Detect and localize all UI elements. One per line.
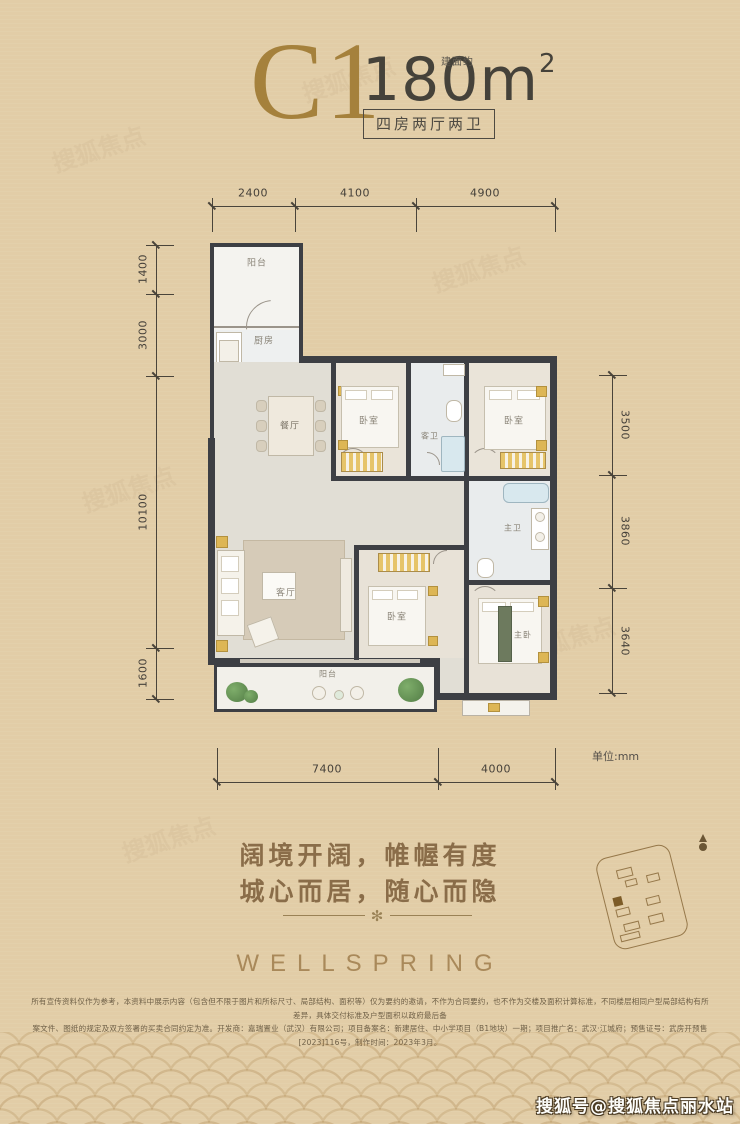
nightstand [536, 386, 547, 397]
cushion [221, 556, 239, 572]
dim-label: 7400 [312, 763, 342, 776]
entry-mat [488, 703, 500, 712]
nightstand [538, 596, 549, 607]
north-arrow-base [699, 843, 707, 851]
room-label-bedroom-3: 卧室 [504, 414, 524, 427]
dim-label: 3000 [137, 320, 150, 350]
wall-bottom-right [437, 693, 557, 700]
divider-right [390, 915, 472, 916]
vanity [443, 364, 465, 376]
disclaimer-line1: 所有宣传资料仅作为参考，本资料中展示内容（包含但不限于图片和所标尺寸、局部结构、… [28, 995, 712, 1022]
toilet [477, 558, 494, 578]
wall-inner [354, 545, 469, 550]
dim-line-bottom [217, 782, 555, 783]
dim-label: 3640 [619, 626, 632, 656]
pillow [397, 590, 418, 600]
pillow [510, 602, 534, 612]
nightstand [338, 440, 348, 450]
dining-chair [256, 440, 267, 452]
balcony-chair [350, 686, 364, 700]
wall-top [299, 356, 557, 363]
sink [535, 512, 545, 522]
dim-label: 3500 [619, 410, 632, 440]
dim-tick [555, 198, 556, 232]
tv-console [340, 558, 352, 632]
plant [244, 690, 258, 703]
wardrobe [500, 452, 546, 469]
room-label-balcony-top: 阳台 [247, 256, 267, 269]
dim-line-left [156, 245, 157, 699]
nightstand [536, 440, 547, 451]
bed-runner [498, 606, 512, 662]
cushion [221, 600, 239, 616]
site-boundary [594, 842, 690, 952]
dim-tick [146, 648, 174, 649]
divider-left [283, 915, 365, 916]
tiled-watermark: 搜狐焦点 [77, 456, 179, 519]
building-footprint [615, 906, 631, 917]
wardrobe [341, 452, 383, 472]
wall-inner [354, 545, 359, 660]
flower-ornament-icon: ✻ [371, 907, 384, 925]
side-table [216, 536, 228, 548]
wall-inner [331, 362, 336, 478]
dim-label: 4000 [481, 763, 511, 776]
building-footprint [646, 872, 661, 883]
building-footprint [625, 878, 638, 888]
building-footprint [620, 931, 641, 943]
wall-left [208, 438, 215, 665]
pillow [371, 390, 393, 400]
dim-line-top [212, 206, 555, 207]
area-superscript: 2 [539, 49, 557, 79]
wall-inner [406, 362, 411, 478]
dining-chair [256, 420, 267, 432]
layout-badge: 四房两厅两卫 [363, 109, 495, 139]
toilet [446, 400, 462, 422]
room-label-master-bedroom: 主卧 [514, 630, 532, 641]
side-table [216, 640, 228, 652]
dining-chair [256, 400, 267, 412]
wardrobe [378, 553, 430, 572]
balcony-chair [312, 686, 326, 700]
dining-chair [315, 440, 326, 452]
dim-tick [295, 198, 296, 232]
dim-label: 1600 [137, 658, 150, 688]
watermark-badge: 搜狐号@搜狐焦点丽水站 [536, 1092, 734, 1117]
floorplan-poster: 搜狐焦点 搜狐焦点 搜狐焦点 搜狐焦点 搜狐焦点 搜狐焦点 C1 180m2 建… [0, 0, 740, 1124]
pillow [345, 390, 367, 400]
north-arrow-triangle [699, 834, 707, 842]
door-arc [470, 448, 500, 478]
wall-inner [331, 476, 557, 481]
building-highlighted [612, 896, 623, 907]
dim-label: 3860 [619, 516, 632, 546]
nightstand [428, 636, 438, 646]
building-footprint [648, 913, 665, 925]
building-footprint [616, 867, 634, 880]
dim-tick [146, 699, 174, 700]
dim-tick [416, 198, 417, 232]
pillow [372, 590, 393, 600]
room-label-living: 客厅 [276, 586, 296, 599]
tiled-watermark: 搜狐焦点 [427, 236, 529, 299]
plant [398, 678, 424, 702]
unit-note: 单位:mm [592, 748, 639, 764]
site-map [592, 828, 732, 956]
window-to-balcony [240, 659, 420, 663]
room-label-master-bath: 主卫 [504, 523, 522, 534]
room-label-bedroom-2: 卧室 [359, 414, 379, 427]
dim-label: 2400 [238, 187, 268, 200]
dim-tick [146, 245, 174, 246]
dim-label: 10100 [137, 493, 150, 531]
wall-inner [464, 476, 469, 700]
room-label-kitchen: 厨房 [254, 334, 274, 347]
tiled-watermark: 搜狐焦点 [47, 116, 149, 179]
kitchen-sink [219, 340, 239, 362]
cushion [221, 578, 239, 594]
nightstand [428, 586, 438, 596]
dim-tick [146, 376, 174, 377]
room-label-guest-bath: 客卫 [421, 431, 439, 442]
dining-chair [315, 420, 326, 432]
wall-right [550, 356, 557, 700]
room-label-dining: 餐厅 [280, 419, 300, 432]
pillow [489, 390, 512, 400]
dim-line-right [612, 375, 613, 693]
nightstand [538, 652, 549, 663]
dim-tick [146, 294, 174, 295]
room-label-bedroom-4: 卧室 [387, 610, 407, 623]
shower [441, 436, 465, 472]
wall-inner [464, 580, 555, 585]
dim-tick [212, 198, 213, 232]
area-prefix-label: 建面约 [441, 53, 474, 68]
balcony-table [334, 690, 344, 700]
north-arrow-icon [696, 834, 710, 856]
dim-label: 4100 [340, 187, 370, 200]
sink [535, 532, 545, 542]
building-footprint [645, 895, 661, 906]
dining-chair [315, 400, 326, 412]
room-label-balcony-bottom: 阳台 [319, 669, 337, 680]
bathtub [503, 483, 549, 503]
dim-label: 4900 [470, 187, 500, 200]
dim-label: 1400 [137, 254, 150, 284]
